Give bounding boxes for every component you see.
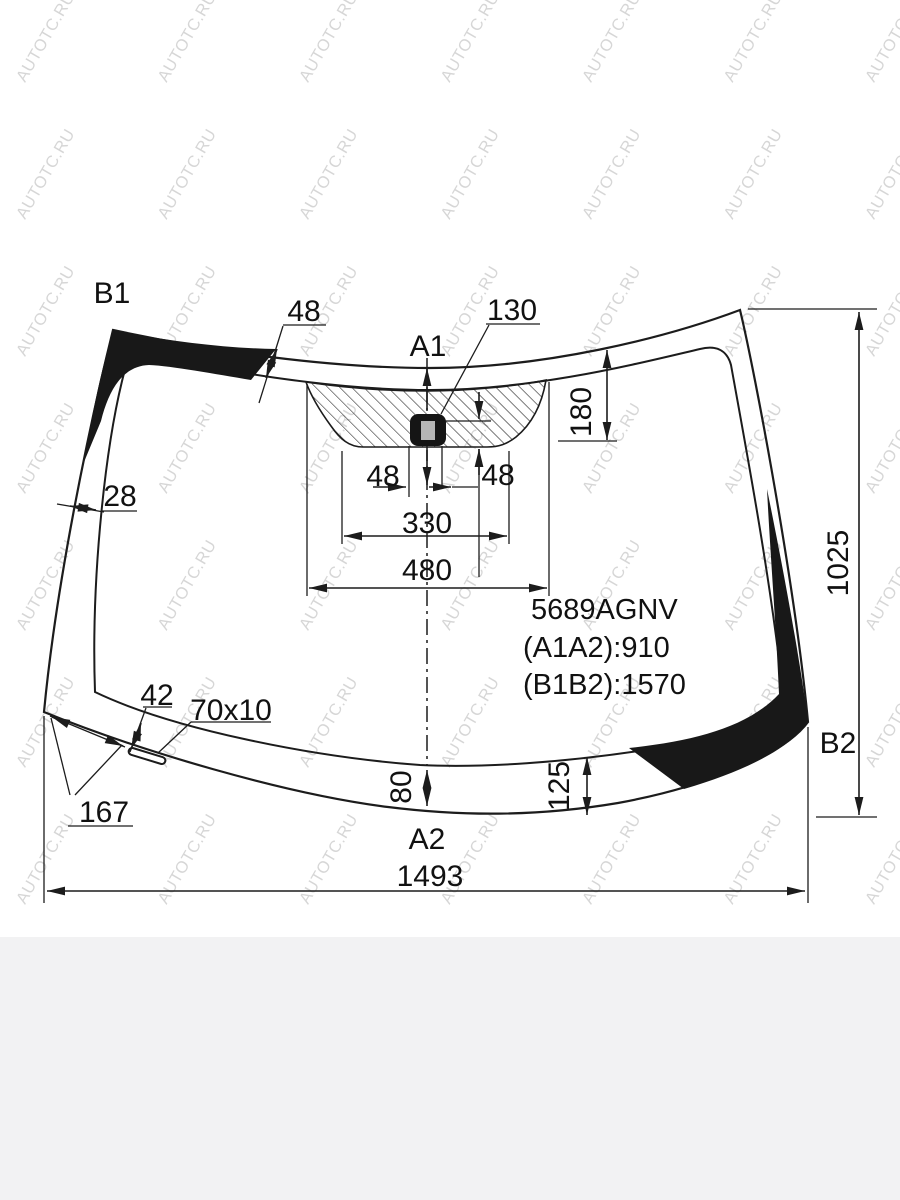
dim-glass-width: 1493 [397, 860, 464, 893]
watermark-text: AUTOTC.RU [296, 537, 362, 633]
watermark-text: AUTOTC.RU [862, 126, 900, 222]
watermark-text: AUTOTC.RU [579, 811, 645, 907]
watermark-text: AUTOTC.RU [437, 0, 503, 85]
part-code: 5689AGNV [531, 594, 678, 626]
watermark-text: AUTOTC.RU [720, 126, 786, 222]
watermark-text: AUTOTC.RU [154, 126, 220, 222]
watermark-text: AUTOTC.RU [437, 126, 503, 222]
watermark-text: AUTOTC.RU [579, 126, 645, 222]
dim-glass-height: 1025 [822, 530, 855, 597]
part-a1a2: (A1A2):910 [523, 632, 670, 664]
dim-corner-band: 167 [79, 796, 129, 829]
watermark-text: AUTOTC.RU [154, 400, 220, 496]
dim-slot-offset: 42 [140, 679, 173, 712]
watermark-text: AUTOTC.RU [13, 0, 79, 85]
point-b1-label: B1 [94, 277, 131, 310]
watermark-text: AUTOTC.RU [862, 400, 900, 496]
dim-bottom-right-band: 125 [543, 761, 576, 811]
dim-mount-left: 48 [366, 460, 399, 493]
dim-slot-size: 70x10 [190, 694, 272, 727]
watermark-text: AUTOTC.RU [579, 263, 645, 359]
dim-mount-offset: 130 [487, 294, 537, 327]
watermark-text: AUTOTC.RU [296, 126, 362, 222]
part-b1b2: (B1B2):1570 [523, 669, 686, 701]
point-a1-label: A1 [410, 330, 447, 363]
watermark-text: AUTOTC.RU [13, 537, 79, 633]
watermark-text: AUTOTC.RU [720, 0, 786, 85]
watermark-layer: AUTOTC.RUAUTOTC.RUAUTOTC.RUAUTOTC.RUAUTO… [13, 0, 900, 907]
watermark-text: AUTOTC.RU [154, 0, 220, 85]
dim-camera-zone-bottom-width: 330 [402, 507, 452, 540]
windshield-diagram-page: AUTOTC.RUAUTOTC.RUAUTOTC.RUAUTOTC.RUAUTO… [0, 0, 900, 1200]
watermark-text: AUTOTC.RU [437, 674, 503, 770]
watermark-text: AUTOTC.RU [720, 811, 786, 907]
watermark-text: AUTOTC.RU [579, 0, 645, 85]
dim-left-band: 28 [103, 480, 136, 513]
windshield-diagram: AUTOTC.RUAUTOTC.RUAUTOTC.RUAUTOTC.RUAUTO… [0, 0, 900, 1200]
mirror-mount [410, 414, 446, 446]
watermark-text: AUTOTC.RU [154, 537, 220, 633]
watermark-text: AUTOTC.RU [296, 0, 362, 85]
watermark-text: AUTOTC.RU [862, 263, 900, 359]
watermark-text: AUTOTC.RU [862, 537, 900, 633]
watermark-text: AUTOTC.RU [296, 811, 362, 907]
watermark-text: AUTOTC.RU [13, 126, 79, 222]
watermark-text: AUTOTC.RU [862, 674, 900, 770]
dim-bottom-center-band: 80 [385, 770, 418, 803]
dim-top-band: 48 [287, 295, 320, 328]
watermark-text: AUTOTC.RU [720, 263, 786, 359]
watermark-text: AUTOTC.RU [720, 400, 786, 496]
watermark-text: AUTOTC.RU [154, 811, 220, 907]
point-a2-label: A2 [409, 823, 446, 856]
dim-camera-zone-height: 180 [565, 387, 598, 437]
watermark-text: AUTOTC.RU [13, 263, 79, 359]
watermark-text: AUTOTC.RU [862, 0, 900, 85]
point-b2-label: B2 [820, 727, 857, 760]
dim-mount-right: 48 [481, 459, 514, 492]
dim-camera-zone-top-width: 480 [402, 554, 452, 587]
watermark-text: AUTOTC.RU [862, 811, 900, 907]
watermark-text: AUTOTC.RU [13, 400, 79, 496]
